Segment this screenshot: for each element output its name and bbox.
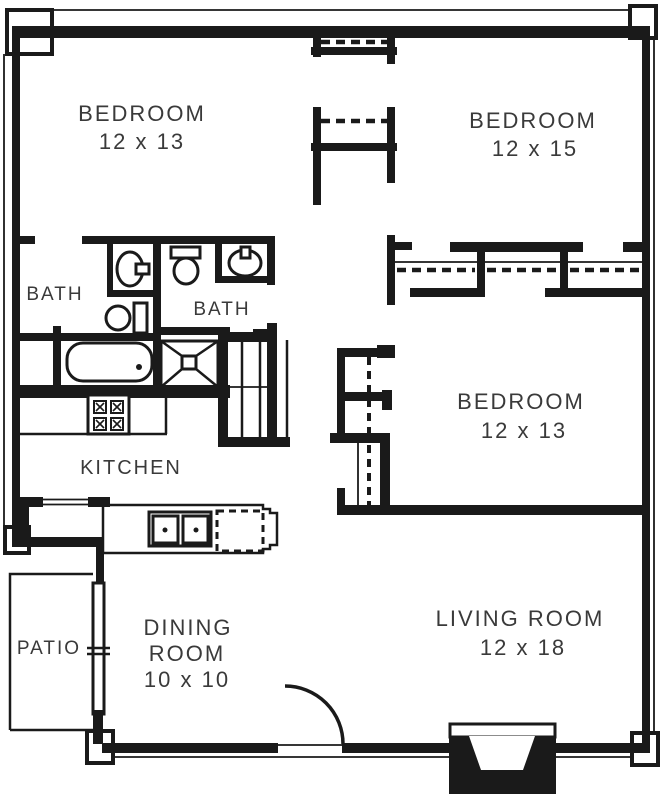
floor-plan: BEDROOM 12 x 13 BEDROOM 12 x 15 BEDROOM … — [0, 0, 662, 800]
toilet-tank-icon — [171, 247, 200, 258]
right-closet-band — [387, 235, 650, 305]
bedroom3-bottom-wall — [337, 505, 650, 515]
bedroom1-label: BEDROOM — [78, 101, 206, 126]
bedroom2-label: BEDROOM — [469, 108, 597, 133]
bedroom3-label: BEDROOM — [457, 389, 585, 414]
bedroom1-dims: 12 x 13 — [99, 129, 185, 154]
bedroom2-dims: 12 x 15 — [492, 136, 578, 161]
closet-shelf — [311, 47, 397, 55]
dining-room-label-line1: DINING — [144, 615, 233, 640]
shower-drain-icon — [182, 356, 196, 369]
wall-top — [12, 26, 650, 38]
dishwasher-dashed — [217, 511, 263, 551]
wall-bottom-mid-seg — [342, 743, 449, 753]
top-center-closets — [311, 38, 397, 205]
shower — [161, 341, 218, 387]
toilet-tank-icon — [134, 303, 147, 333]
wall-bottom-left-seg — [102, 743, 278, 753]
bath-right-label: BATH — [193, 299, 250, 320]
fireplace — [449, 724, 556, 794]
patio-label: PATIO — [17, 638, 81, 659]
faucet-icon — [136, 264, 149, 274]
toilet-bowl-icon — [174, 258, 198, 284]
living-room-dims: 12 x 18 — [480, 635, 566, 660]
living-room-label: LIVING ROOM — [436, 606, 605, 631]
faucet-icon — [241, 247, 250, 258]
tub-drain-icon — [136, 364, 142, 370]
bath-left-label: BATH — [26, 284, 83, 305]
bathtub-icon — [67, 343, 152, 381]
wall-left — [12, 26, 20, 507]
toilet-bowl-icon — [106, 306, 130, 330]
wall-bottom-right-seg — [556, 743, 642, 753]
floor-plan-drawing: BEDROOM 12 x 13 BEDROOM 12 x 15 BEDROOM … — [0, 0, 662, 800]
entry-door-arc — [285, 686, 343, 744]
dining-room-label-line2: ROOM — [149, 641, 225, 666]
kitchen-label: KITCHEN — [80, 457, 182, 479]
bedroom3-dims: 12 x 13 — [481, 418, 567, 443]
wall-right — [642, 26, 650, 753]
closet-shelf — [311, 143, 397, 151]
dining-room-dims: 10 x 10 — [144, 667, 230, 692]
